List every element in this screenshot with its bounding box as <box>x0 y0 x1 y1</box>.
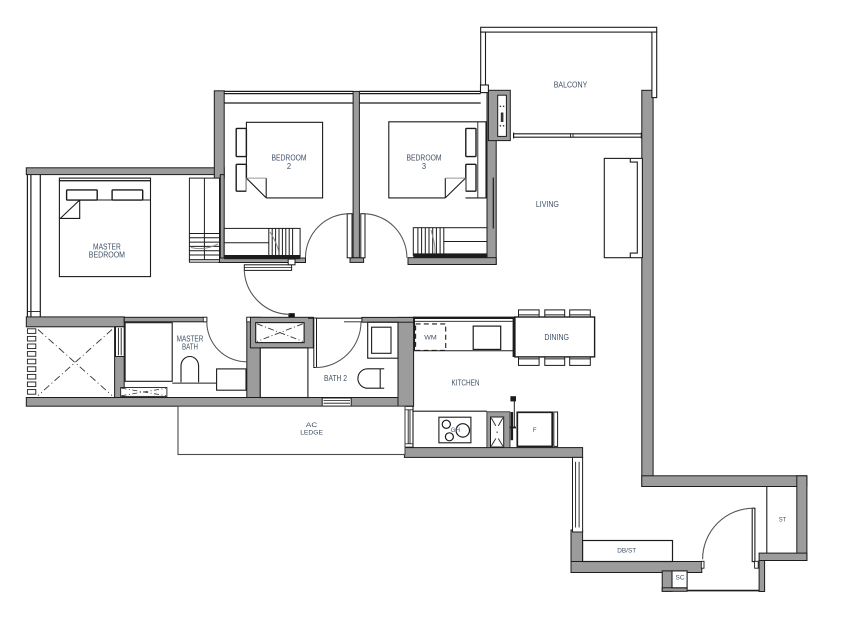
svg-text:3: 3 <box>422 162 427 171</box>
svg-text:F: F <box>533 427 537 434</box>
svg-text:BATH 2: BATH 2 <box>324 374 347 383</box>
svg-text:2: 2 <box>287 162 292 171</box>
svg-text:SC: SC <box>676 574 685 581</box>
svg-text:LIVING: LIVING <box>536 200 559 209</box>
svg-text:DB/ST: DB/ST <box>617 548 636 555</box>
svg-text:ST: ST <box>779 516 786 523</box>
svg-text:DINING: DINING <box>544 333 569 342</box>
svg-text:WM: WM <box>424 335 437 342</box>
svg-text:BEDROOM: BEDROOM <box>89 251 125 260</box>
svg-text:AC: AC <box>306 422 317 429</box>
svg-text:BALCONY: BALCONY <box>554 80 588 89</box>
svg-text:LEDGE: LEDGE <box>300 430 323 437</box>
svg-text:KITCHEN: KITCHEN <box>451 379 479 388</box>
svg-text:GH: GH <box>451 428 460 434</box>
svg-text:BATH: BATH <box>182 342 198 351</box>
